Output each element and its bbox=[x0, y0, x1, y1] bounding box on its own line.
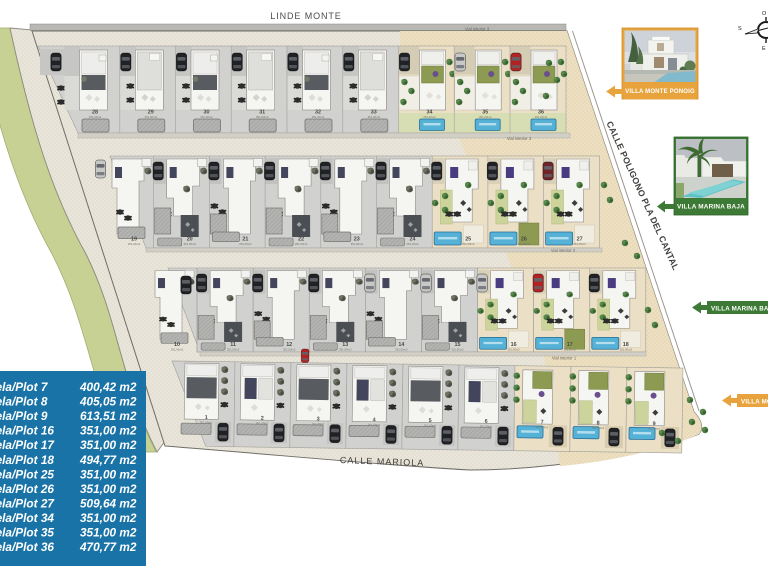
svg-text:351,00m2: 351,00m2 bbox=[480, 424, 493, 428]
svg-text:351,00m2: 351,00m2 bbox=[620, 348, 633, 352]
svg-text:Parcela/Plot 16: Parcela/Plot 16 bbox=[0, 424, 54, 438]
svg-text:351,00m2: 351,00m2 bbox=[128, 242, 141, 246]
svg-text:VILLA MARINA BAJA: VILLA MARINA BAJA bbox=[677, 204, 745, 211]
svg-text:Vial interior 3: Vial interior 3 bbox=[465, 27, 490, 32]
svg-text:351,00 m2: 351,00 m2 bbox=[80, 467, 137, 481]
svg-text:S: S bbox=[738, 26, 742, 32]
svg-text:351,00 m2: 351,00 m2 bbox=[80, 526, 137, 540]
svg-text:351,00m2: 351,00m2 bbox=[536, 425, 549, 429]
svg-text:CALLE MARIOLA: CALLE MARIOLA bbox=[340, 455, 425, 468]
svg-text:509,64 m2: 509,64 m2 bbox=[80, 496, 137, 510]
svg-text:351,00m2: 351,00m2 bbox=[171, 348, 184, 352]
svg-text:351,00m2: 351,00m2 bbox=[312, 115, 325, 119]
svg-text:351,00m2: 351,00m2 bbox=[406, 242, 419, 246]
svg-text:351,00m2: 351,00m2 bbox=[451, 348, 464, 352]
svg-text:351,00m2: 351,00m2 bbox=[368, 423, 381, 427]
svg-text:VILLA MARINA BA: VILLA MARINA BA bbox=[711, 306, 768, 313]
svg-text:351,00m2: 351,00m2 bbox=[592, 426, 605, 430]
svg-text:351,00m2: 351,00m2 bbox=[89, 115, 102, 119]
svg-text:351,00m2: 351,00m2 bbox=[239, 242, 252, 246]
svg-text:Parcela/Plot 35: Parcela/Plot 35 bbox=[0, 526, 54, 540]
svg-text:351,00m2: 351,00m2 bbox=[351, 242, 364, 246]
svg-text:351,00m2: 351,00m2 bbox=[395, 348, 408, 352]
svg-text:Vial interior 2: Vial interior 2 bbox=[551, 248, 576, 253]
svg-text:Vial interior 1: Vial interior 1 bbox=[552, 356, 577, 361]
svg-text:O: O bbox=[762, 11, 767, 17]
svg-text:Parcela/Plot 9: Parcela/Plot 9 bbox=[0, 409, 48, 423]
svg-text:Parcela/Plot 17: Parcela/Plot 17 bbox=[0, 438, 55, 452]
svg-text:351,00m2: 351,00m2 bbox=[648, 427, 661, 431]
svg-text:E: E bbox=[762, 46, 766, 52]
svg-text:Vial interior 3: Vial interior 3 bbox=[507, 136, 532, 141]
svg-text:Parcela/Plot 25: Parcela/Plot 25 bbox=[0, 467, 54, 481]
svg-text:351,00m2: 351,00m2 bbox=[479, 115, 492, 119]
svg-text:351,00m2: 351,00m2 bbox=[535, 115, 548, 119]
svg-text:Parcela/Plot 27: Parcela/Plot 27 bbox=[0, 496, 55, 510]
svg-text:VILLA MO: VILLA MO bbox=[741, 399, 768, 406]
svg-text:351,00m2: 351,00m2 bbox=[227, 348, 240, 352]
svg-text:351,00m2: 351,00m2 bbox=[423, 115, 436, 119]
svg-text:351,00m2: 351,00m2 bbox=[507, 348, 520, 352]
svg-text:Parcela/Plot 26: Parcela/Plot 26 bbox=[0, 482, 54, 496]
svg-text:351,00m2: 351,00m2 bbox=[256, 421, 269, 425]
svg-text:351,00 m2: 351,00 m2 bbox=[80, 511, 137, 525]
svg-text:Parcela/Plot 7: Parcela/Plot 7 bbox=[0, 380, 49, 394]
svg-text:351,00m2: 351,00m2 bbox=[424, 424, 437, 428]
svg-text:351,00m2: 351,00m2 bbox=[368, 115, 381, 119]
svg-text:351,00m2: 351,00m2 bbox=[183, 242, 196, 246]
svg-text:613,51 m2: 613,51 m2 bbox=[80, 409, 137, 423]
svg-text:351,00m2: 351,00m2 bbox=[200, 115, 213, 119]
svg-text:351,00m2: 351,00m2 bbox=[200, 420, 213, 424]
svg-text:400,42 m2: 400,42 m2 bbox=[79, 380, 137, 394]
svg-text:470,77 m2: 470,77 m2 bbox=[79, 540, 137, 554]
svg-text:351,00m2: 351,00m2 bbox=[312, 422, 325, 426]
svg-text:351,00 m2: 351,00 m2 bbox=[80, 438, 137, 452]
svg-text:405,05 m2: 405,05 m2 bbox=[79, 395, 137, 409]
svg-text:351,00m2: 351,00m2 bbox=[563, 348, 576, 352]
svg-text:351,00m2: 351,00m2 bbox=[283, 348, 296, 352]
svg-text:Parcela/Plot 8: Parcela/Plot 8 bbox=[0, 395, 48, 409]
svg-text:Parcela/Plot 36: Parcela/Plot 36 bbox=[0, 540, 54, 554]
svg-text:Parcela/Plot 18: Parcela/Plot 18 bbox=[0, 453, 54, 467]
svg-text:351,00m2: 351,00m2 bbox=[518, 242, 531, 246]
svg-text:351,00 m2: 351,00 m2 bbox=[80, 482, 137, 496]
svg-text:351,00m2: 351,00m2 bbox=[295, 242, 308, 246]
svg-text:494,77 m2: 494,77 m2 bbox=[79, 453, 137, 467]
svg-text:Parcela/Plot 34: Parcela/Plot 34 bbox=[0, 511, 54, 525]
svg-text:351,00m2: 351,00m2 bbox=[339, 348, 352, 352]
svg-text:351,00 m2: 351,00 m2 bbox=[80, 424, 137, 438]
svg-text:351,00m2: 351,00m2 bbox=[256, 115, 269, 119]
svg-text:351,00m2: 351,00m2 bbox=[145, 115, 158, 119]
svg-text:VILLA MONTE PONOIG: VILLA MONTE PONOIG bbox=[625, 89, 695, 95]
svg-text:351,00m2: 351,00m2 bbox=[462, 242, 475, 246]
svg-text:351,00m2: 351,00m2 bbox=[573, 242, 586, 246]
svg-text:LINDE MONTE: LINDE MONTE bbox=[270, 11, 341, 21]
